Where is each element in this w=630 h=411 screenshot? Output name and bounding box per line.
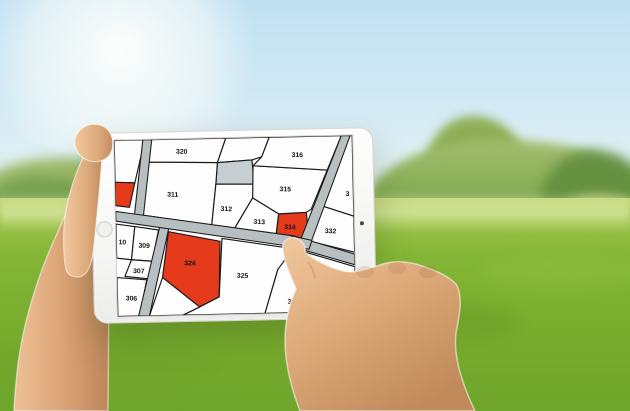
parcel-label-315: 315 [279, 186, 291, 193]
tablet: 3203113123133143153163332103093073063243… [90, 127, 377, 324]
front-camera-icon [360, 221, 364, 225]
parcel-label-306: 306 [126, 295, 138, 302]
outdoor-scene: 3203113123133143153163332103093073063243… [0, 0, 630, 411]
grass-patch [480, 250, 630, 290]
parcel-label-3: 3 [345, 191, 349, 198]
parcel-label-320: 320 [176, 149, 188, 156]
home-button[interactable] [96, 221, 113, 238]
parcel-label-312: 312 [220, 206, 232, 213]
parcel-label-316: 316 [291, 152, 303, 159]
parcel-label-309: 309 [138, 243, 150, 250]
parcel-label-314: 314 [284, 224, 296, 231]
parcel[interactable] [215, 160, 254, 185]
parcel-label-332: 332 [325, 228, 337, 235]
parcel-label-313: 313 [253, 219, 265, 226]
parcel-label-307: 307 [133, 268, 145, 275]
parcel-label-328: 328 [288, 299, 300, 306]
cadastral-map[interactable]: 3203113123133143153163332103093073063243… [114, 135, 356, 316]
tablet-screen[interactable]: 3203113123133143153163332103093073063243… [113, 134, 357, 317]
parcel-label-325: 325 [237, 273, 249, 280]
parcel-label-10: 10 [118, 239, 126, 246]
parcel-label-324: 324 [184, 260, 196, 267]
parcel-label-311: 311 [167, 191, 179, 198]
